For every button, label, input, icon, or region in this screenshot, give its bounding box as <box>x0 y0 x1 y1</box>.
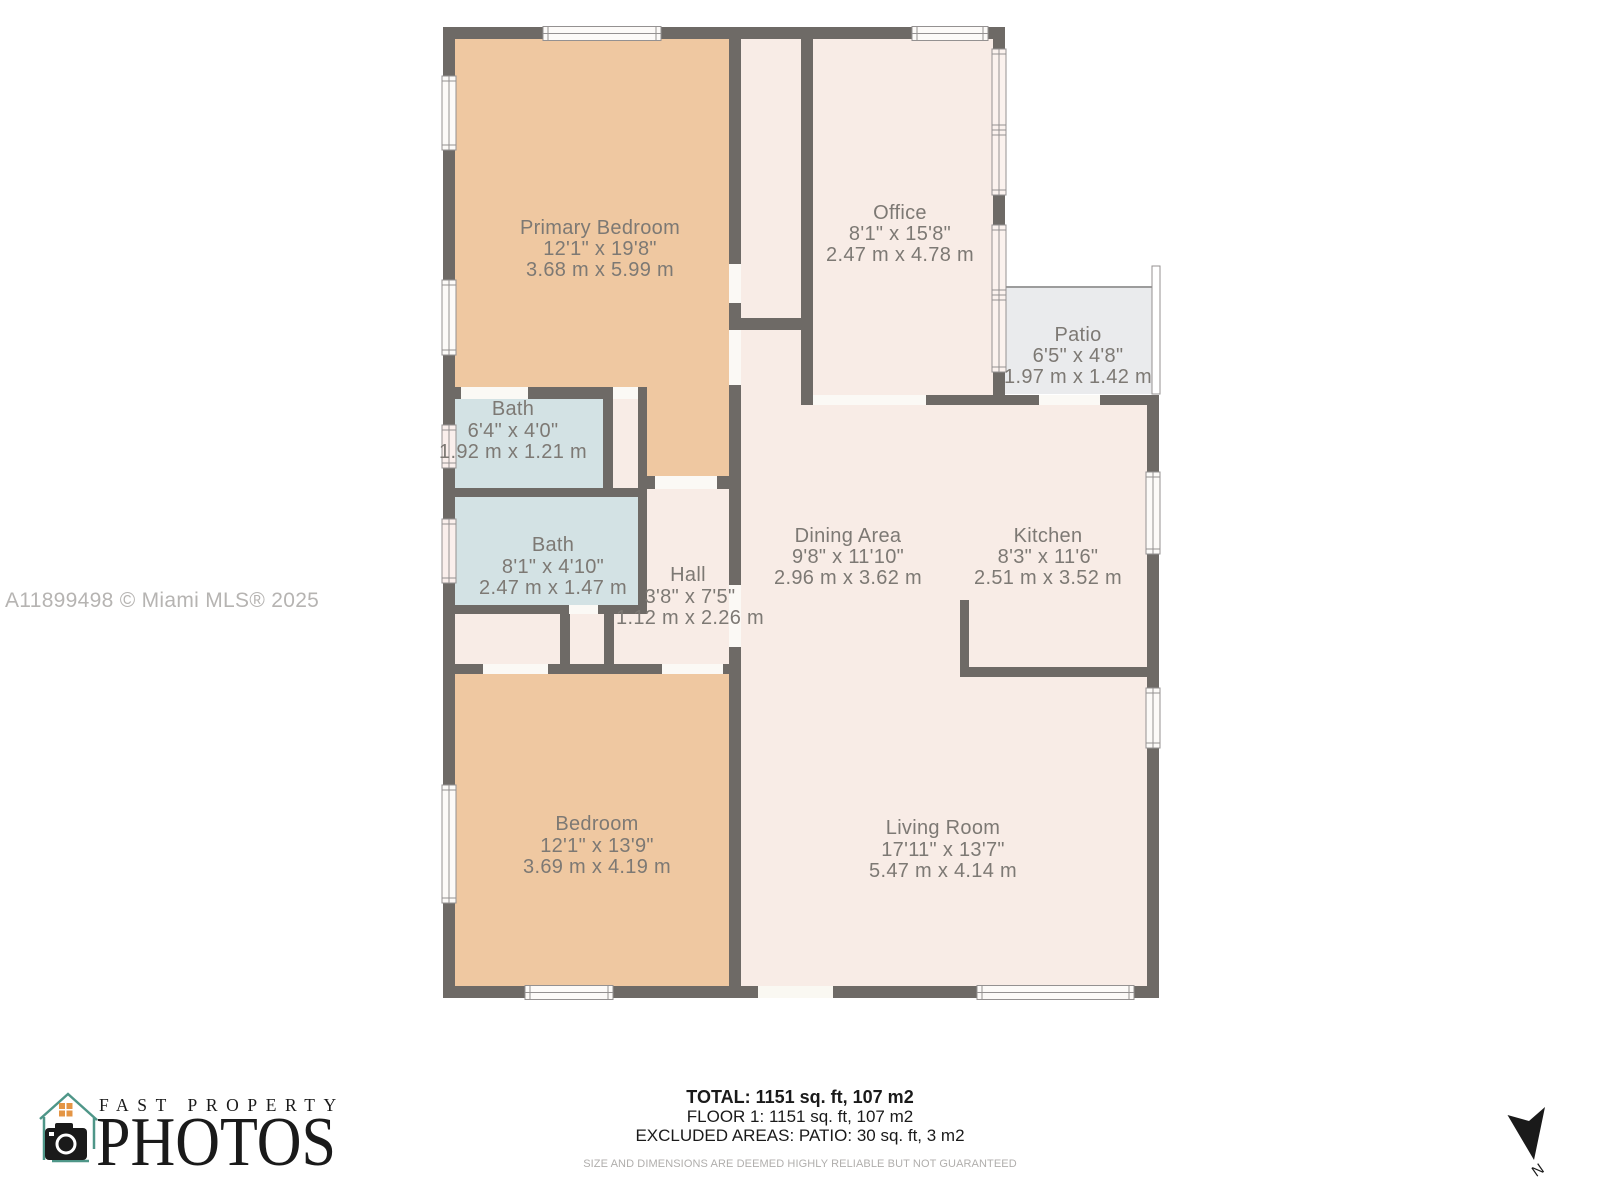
svg-text:Bath: Bath <box>532 534 574 556</box>
svg-text:9'8" x 11'10": 9'8" x 11'10" <box>792 546 904 568</box>
svg-text:3.69 m x 4.19 m: 3.69 m x 4.19 m <box>523 856 671 878</box>
svg-text:SIZE AND DIMENSIONS ARE DEEMED: SIZE AND DIMENSIONS ARE DEEMED HIGHLY RE… <box>583 1158 1017 1170</box>
svg-text:6'4" x 4'0": 6'4" x 4'0" <box>468 420 559 442</box>
svg-text:12'1" x 19'8": 12'1" x 19'8" <box>543 238 657 260</box>
svg-text:3'8" x 7'5": 3'8" x 7'5" <box>645 586 736 608</box>
svg-text:FLOOR 1: 1151 sq. ft, 107 m2: FLOOR 1: 1151 sq. ft, 107 m2 <box>687 1107 913 1126</box>
svg-text:Office: Office <box>873 202 927 224</box>
svg-text:6'5" x 4'8": 6'5" x 4'8" <box>1033 345 1124 367</box>
svg-text:Kitchen: Kitchen <box>1014 525 1083 547</box>
svg-text:1.97 m x 1.42 m: 1.97 m x 1.42 m <box>1004 366 1152 388</box>
svg-text:Primary Bedroom: Primary Bedroom <box>520 217 680 239</box>
svg-text:Patio: Patio <box>1054 324 1101 346</box>
svg-text:17'11" x 13'7": 17'11" x 13'7" <box>881 839 1005 861</box>
svg-text:PHOTOS: PHOTOS <box>96 1104 336 1181</box>
svg-text:5.47 m x 4.14 m: 5.47 m x 4.14 m <box>869 860 1017 882</box>
svg-text:1.92 m x 1.21 m: 1.92 m x 1.21 m <box>439 441 587 463</box>
svg-text:2.47 m x 1.47 m: 2.47 m x 1.47 m <box>479 577 627 599</box>
svg-text:8'1" x 4'10": 8'1" x 4'10" <box>502 556 604 578</box>
svg-text:8'1" x 15'8": 8'1" x 15'8" <box>849 223 951 245</box>
svg-text:3.68 m x 5.99 m: 3.68 m x 5.99 m <box>526 259 674 281</box>
svg-text:Living Room: Living Room <box>886 817 1000 839</box>
svg-text:TOTAL: 1151 sq. ft, 107 m2: TOTAL: 1151 sq. ft, 107 m2 <box>686 1087 913 1107</box>
svg-text:2.47 m x 4.78 m: 2.47 m x 4.78 m <box>826 244 974 266</box>
svg-text:Bath: Bath <box>492 398 534 420</box>
svg-text:8'3" x 11'6": 8'3" x 11'6" <box>998 546 1099 568</box>
svg-text:2.51 m x 3.52 m: 2.51 m x 3.52 m <box>974 567 1122 589</box>
svg-text:12'1" x 13'9": 12'1" x 13'9" <box>540 835 654 857</box>
svg-text:A11899498 © Miami MLS® 2025: A11899498 © Miami MLS® 2025 <box>5 589 319 612</box>
svg-text:1.12 m x 2.26 m: 1.12 m x 2.26 m <box>616 607 764 629</box>
svg-text:EXCLUDED AREAS: PATIO: 30 sq.: EXCLUDED AREAS: PATIO: 30 sq. ft, 3 m2 <box>635 1126 964 1145</box>
svg-text:Bedroom: Bedroom <box>555 813 638 835</box>
svg-text:Hall: Hall <box>670 564 706 586</box>
svg-text:2.96 m x 3.62 m: 2.96 m x 3.62 m <box>774 567 922 589</box>
svg-text:Dining Area: Dining Area <box>795 525 902 547</box>
